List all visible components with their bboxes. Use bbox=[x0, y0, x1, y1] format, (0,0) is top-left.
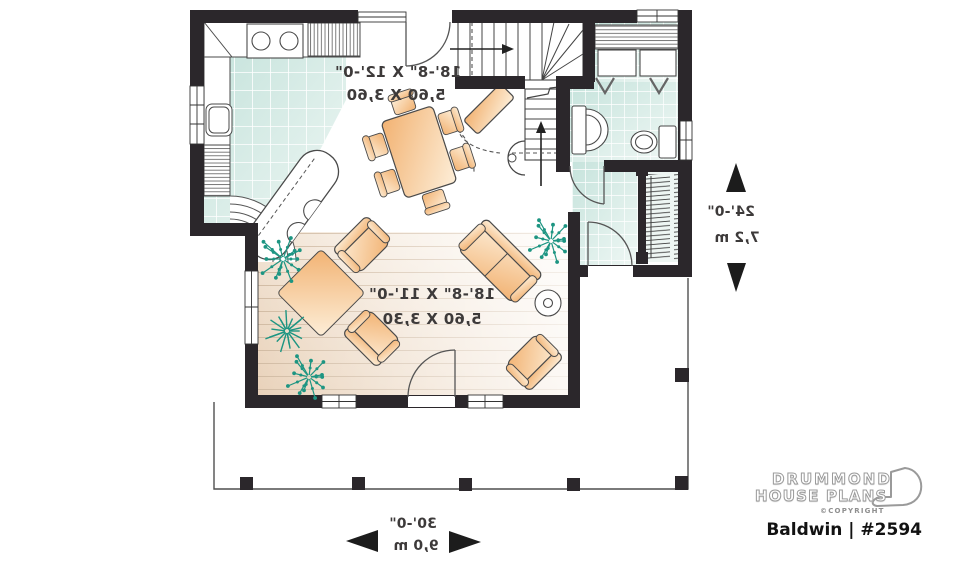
arrow-down-icon bbox=[727, 263, 746, 292]
window bbox=[190, 86, 204, 144]
floor-plan-page: 18'-8" X 12'-0" 5,60 X 3,60 18'-8" X 11'… bbox=[0, 0, 960, 569]
living-room-size-metric: 5,60 X 3,30 bbox=[382, 310, 481, 328]
kitchen-dining-size-metric: 5,60 X 3,60 bbox=[346, 86, 445, 104]
laundry-counter bbox=[595, 25, 678, 49]
depth-dimension-metric: 7,2 m bbox=[714, 230, 759, 246]
brand-name-line1: DRUMMOND bbox=[772, 470, 892, 488]
arrow-left-icon bbox=[346, 530, 378, 552]
window bbox=[637, 10, 678, 22]
side-table bbox=[535, 290, 561, 316]
stove bbox=[247, 24, 303, 58]
sidelight-window bbox=[358, 12, 406, 22]
brand-copyright: ©COPYRIGHT bbox=[820, 507, 885, 515]
living-room-size-imperial: 18'-8" X 11'-0" bbox=[369, 285, 495, 303]
closet bbox=[646, 172, 678, 262]
width-dimension-imperial: 30'-0" bbox=[389, 516, 437, 532]
kitchen-sink bbox=[206, 104, 232, 136]
width-dimension-metric: 9,0 m bbox=[393, 538, 438, 554]
brand-name-line2: HOUSE PLANS bbox=[755, 487, 887, 505]
window bbox=[322, 395, 356, 408]
plan-title: Baldwin | #2594 bbox=[766, 520, 922, 540]
window bbox=[245, 271, 258, 344]
depth-dimension-imperial: 24'-0" bbox=[707, 204, 755, 220]
arrow-up-icon bbox=[726, 163, 746, 192]
arrow-right-icon bbox=[449, 531, 481, 553]
window bbox=[680, 121, 692, 160]
kitchen-dining-size-imperial: 18'-8" X 12'-0" bbox=[335, 63, 461, 81]
window bbox=[468, 395, 503, 408]
